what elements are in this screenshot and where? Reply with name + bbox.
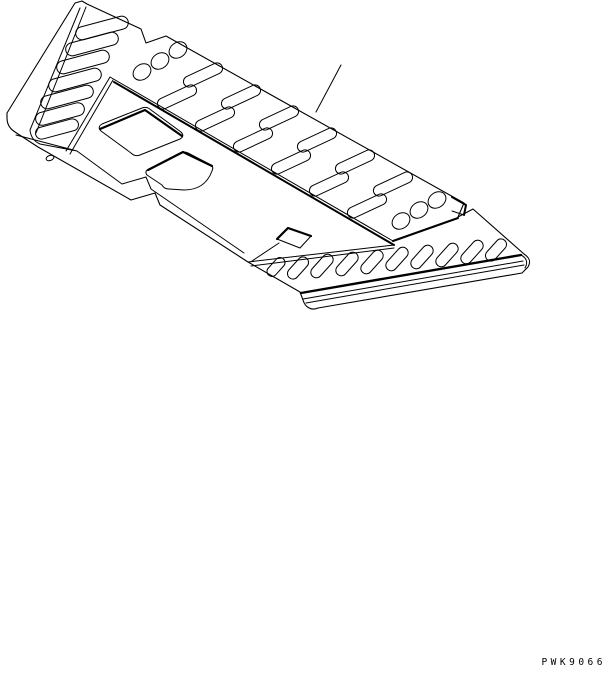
watermark-code: PWK9066	[541, 657, 606, 668]
rear-band-bottom-edge	[393, 218, 458, 241]
tread-slot	[409, 243, 436, 271]
round-hole	[130, 60, 154, 83]
tread-slot	[285, 255, 311, 282]
figure-canvas	[0, 0, 613, 673]
left-band-slot	[74, 15, 130, 42]
corner-notch-tab-side	[452, 211, 464, 215]
round-hole	[389, 209, 413, 232]
fold-line-lower	[114, 82, 394, 245]
rear-band-slot	[270, 148, 313, 176]
tread-slot	[434, 241, 461, 269]
tread-slot	[265, 255, 287, 278]
quad-opening-2	[146, 152, 213, 190]
round-hole	[148, 49, 172, 72]
tread-front-face-lines	[303, 255, 527, 303]
rear-band-slot	[372, 170, 415, 198]
round-hole	[166, 38, 190, 61]
rear-band-slot	[220, 83, 263, 111]
quad-opening-2-thick-edge	[148, 152, 212, 170]
latch-tab-thick-edge	[277, 228, 311, 239]
tread-slot	[309, 252, 336, 280]
rear-band-slot	[308, 170, 351, 198]
round-hole	[45, 154, 54, 161]
rear-band-slot	[334, 148, 377, 176]
rear-band-slot	[346, 192, 389, 220]
rear-band-slot	[232, 126, 275, 154]
parts-diagram-svg	[0, 0, 613, 673]
tread-top-boundary	[248, 245, 394, 266]
rear-band-slot	[296, 126, 339, 154]
round-hole	[425, 188, 449, 211]
leader-line	[316, 65, 341, 112]
plate-outer-outline	[7, 1, 530, 309]
round-hole	[407, 198, 431, 221]
fold-line-upper	[110, 77, 393, 241]
